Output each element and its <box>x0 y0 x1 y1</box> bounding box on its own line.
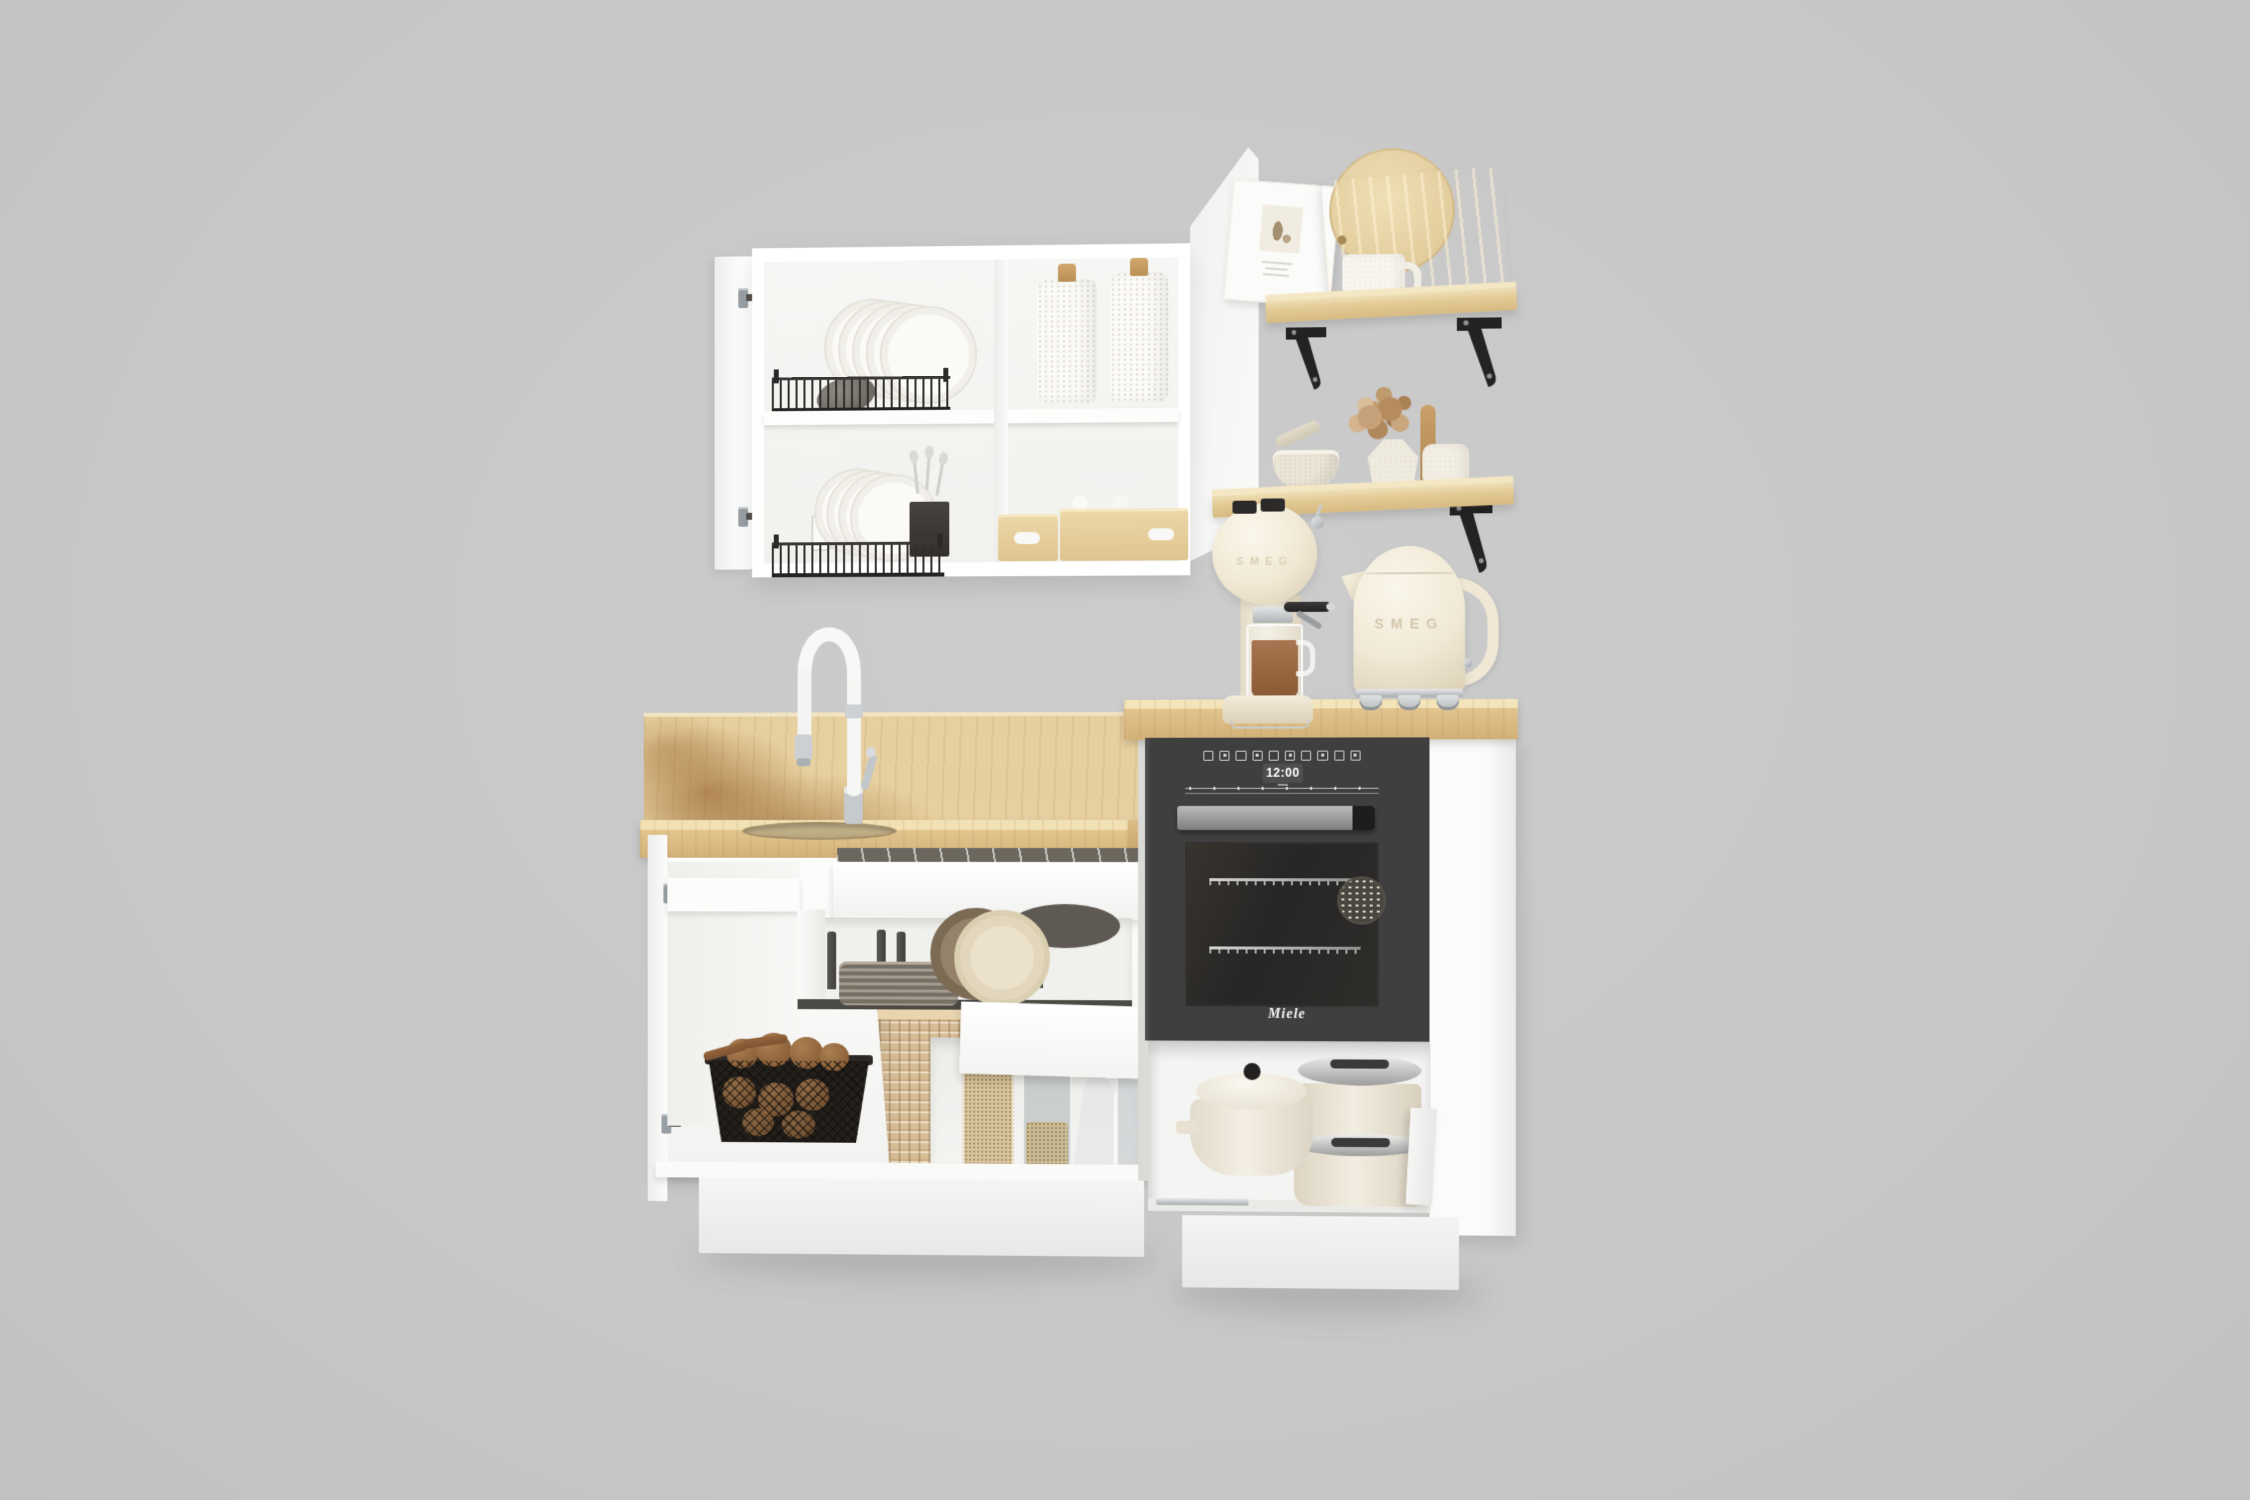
wire-mesh <box>709 1060 869 1142</box>
cream-plate <box>954 910 1050 1006</box>
art-print <box>1259 204 1303 253</box>
espresso-machine: SMEG <box>1198 500 1335 728</box>
dried-flowers <box>1358 405 1382 429</box>
backsplash-panel <box>644 712 1140 826</box>
electric-kettle: SMEG <box>1349 541 1491 729</box>
program-icon <box>1285 751 1295 761</box>
compartment-top-right <box>764 257 1178 262</box>
kettle-brand-label: SMEG <box>1354 615 1465 632</box>
program-icon <box>1236 751 1246 761</box>
box-handle-cutout <box>1014 532 1040 544</box>
steam-knob <box>1311 516 1324 529</box>
machine-base <box>1222 695 1313 723</box>
plate-drawer-open <box>798 918 1132 1011</box>
program-icon <box>1269 751 1279 761</box>
glass-jar <box>1116 1076 1138 1172</box>
drawer-side <box>798 910 826 1010</box>
wall-cabinet-open-door <box>715 256 752 569</box>
white-pot <box>1190 1099 1313 1176</box>
oven-rack <box>1209 946 1360 949</box>
program-icon <box>1334 751 1344 761</box>
drawer-slide-rail <box>1156 1198 1248 1206</box>
steel-pot-lid <box>1298 1055 1421 1086</box>
program-icon <box>1301 751 1311 761</box>
faucet <box>782 609 891 828</box>
kettle-foot <box>1398 695 1420 710</box>
cork-stopper <box>1130 258 1148 276</box>
wooden-box <box>998 514 1058 561</box>
glass-coffee-mug <box>1247 624 1303 704</box>
machine-head: SMEG <box>1212 503 1317 604</box>
box-handle-cutout <box>1148 528 1174 540</box>
spoon-icon <box>935 462 944 496</box>
plinth-right <box>1182 1215 1459 1290</box>
wooden-box <box>1060 508 1188 561</box>
kettle-foot <box>1360 695 1382 710</box>
vase <box>1368 439 1419 486</box>
cabinet-shelf <box>764 408 1178 425</box>
oven-handle <box>1177 806 1375 830</box>
lid-knob <box>1244 1063 1261 1080</box>
wire-basket-potatoes <box>699 1033 879 1149</box>
oven-door-window <box>1185 842 1379 1007</box>
program-icon <box>1350 751 1360 761</box>
built-in-oven: 12:00 Miele <box>1145 737 1429 1041</box>
render-canvas: 12:00 Miele SMEG <box>0 0 2250 1500</box>
hinge-icon <box>738 288 748 308</box>
toggle-switch-icon <box>1261 498 1285 511</box>
caption-line <box>1262 261 1292 265</box>
plate-peg <box>827 932 836 990</box>
oven-rack <box>1209 878 1360 881</box>
pestle <box>1274 419 1321 449</box>
caption-line <box>1265 267 1287 271</box>
oven-clock-display: 12:00 <box>1263 764 1303 783</box>
oven-touch-bar <box>1185 788 1379 794</box>
kitchen-scene: 12:00 Miele SMEG <box>604 113 1564 1427</box>
program-icon <box>1203 751 1213 761</box>
oven-program-icons <box>1203 751 1360 761</box>
pot-handle <box>1176 1121 1198 1134</box>
compartment-top-left <box>764 257 1178 262</box>
tall-cabinet-side-panel <box>1429 737 1515 1236</box>
portafilter-handle <box>1284 602 1331 612</box>
caption-line <box>1263 273 1289 277</box>
hinge-icon <box>738 507 748 527</box>
program-icon <box>1318 751 1328 761</box>
interior-shelf <box>667 878 799 912</box>
oven-fan-icon <box>1337 876 1386 924</box>
kettle-switch <box>1463 659 1472 668</box>
compartment-bottom-right <box>764 257 1178 262</box>
shelf-bracket-icon <box>1284 323 1330 392</box>
dish-rack <box>772 542 944 578</box>
kettle-body: SMEG <box>1354 546 1465 692</box>
cork-stopper <box>1058 264 1076 282</box>
wall-cabinet <box>752 243 1190 577</box>
toggle-switch-icon <box>1232 501 1256 514</box>
program-icon <box>1252 751 1262 761</box>
dish-rack <box>772 376 950 412</box>
pot-drawer-open <box>1148 1042 1430 1213</box>
oven-brand-logo: Miele <box>1145 1006 1429 1023</box>
kettle-foot <box>1437 695 1459 710</box>
wall-shelf-lower <box>604 113 1564 127</box>
cream-pot <box>1298 1083 1421 1138</box>
plate-drawer-front <box>959 1001 1141 1078</box>
coffee-brand-label: SMEG <box>1212 556 1317 569</box>
ceramic-canister <box>1037 278 1097 404</box>
shelf-bracket-icon <box>1455 313 1506 390</box>
wall-cabinet-interior <box>764 257 1178 563</box>
ceramic-canister <box>1110 272 1168 404</box>
coffee-liquid <box>1252 640 1298 696</box>
spoon-icon <box>925 456 930 490</box>
glass-jar <box>1022 1068 1072 1176</box>
pot-drawer-front <box>1406 1107 1437 1205</box>
compartment-bottom-left <box>764 257 1178 262</box>
plinth-left <box>699 1178 1144 1257</box>
program-icon <box>1220 751 1230 761</box>
wall-shelf-upper <box>604 113 1564 127</box>
